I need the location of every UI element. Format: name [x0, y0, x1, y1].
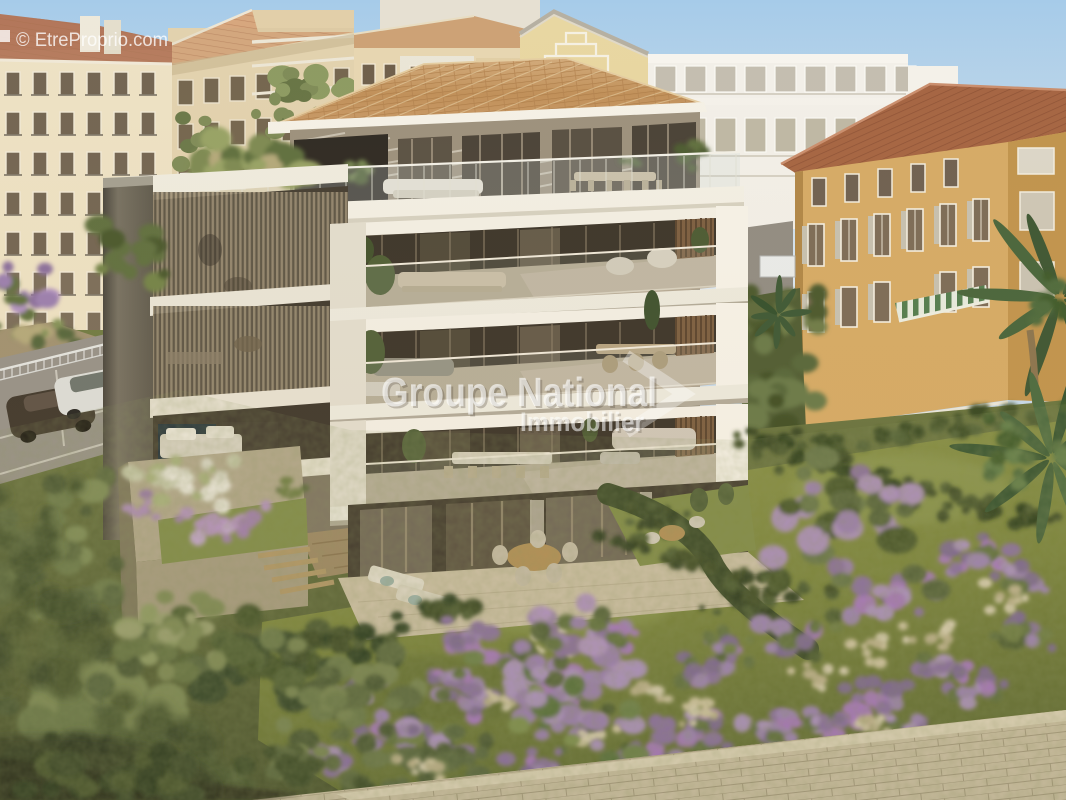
svg-text:© EtreProprio.com: © EtreProprio.com	[16, 29, 168, 51]
svg-text:Immobilier: Immobilier	[520, 407, 644, 437]
